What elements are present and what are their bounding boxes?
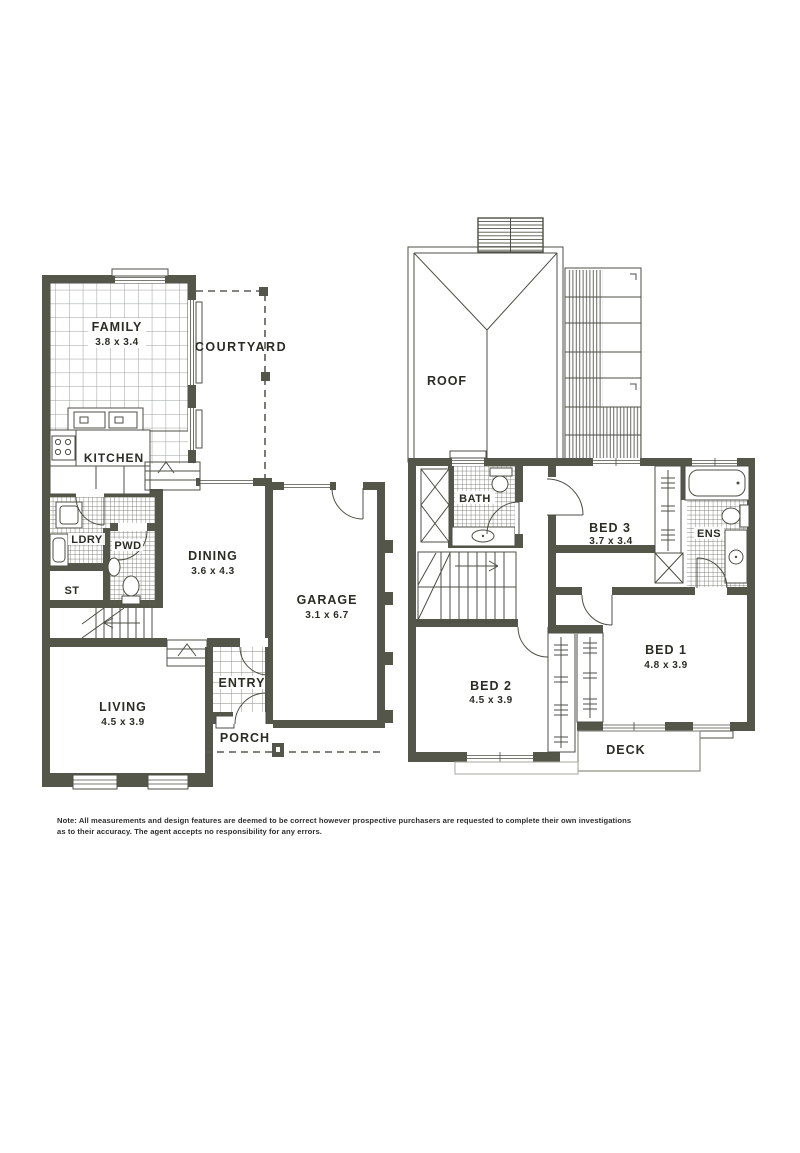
chimney [478,218,543,252]
garage-window [284,482,330,490]
step-arrow-icon [178,644,196,656]
disclaimer-note: Note: All measurements and design featur… [57,816,642,837]
room-label-bath: BATH [459,493,491,505]
room-label-courtyard: COURTYARD [195,340,287,354]
garage-door [332,482,363,519]
pwd-basin-icon [108,558,120,576]
bed2-door [518,627,548,657]
family-top-window [112,269,168,283]
ground-stairs [50,608,163,638]
dining-window [200,478,253,486]
upper-stairs [418,552,516,622]
stove-icon [52,436,75,460]
bed1-door [582,595,612,625]
pergola [565,268,641,460]
entry-step [216,716,234,728]
room-dims-bed1: 4.8 x 3.9 [644,660,687,671]
ens-toilet-icon [722,508,740,524]
family-side-windows [188,300,202,450]
room-label-st: ST [64,585,79,597]
room-label-dining: DINING [188,549,238,563]
room-label-bed2: BED 2 [470,679,512,693]
kitchen-sink [74,412,105,428]
courtyard-post [261,372,270,381]
room-dims-bed2: 4.5 x 3.9 [469,695,512,706]
kitchen-steps [145,462,200,490]
upper-floor-plan: ROOF BATH BED 3 3.7 x 3.4 ENS BED 1 4.8 … [408,218,755,774]
room-dims-family: 3.8 x 3.4 [95,337,138,348]
pwd-toilet-icon [123,576,139,596]
room-label-roof: ROOF [427,374,467,388]
courtyard-post [259,287,268,296]
room-label-living: LIVING [99,700,147,714]
linen-cupboard [421,469,449,542]
room-label-porch: PORCH [220,731,270,745]
bed3-window [593,458,640,466]
bed3-robe [655,466,683,583]
room-label-family: FAMILY [92,320,143,334]
roof-hip-lines [414,253,557,462]
room-dims-dining: 3.6 x 4.3 [191,566,234,577]
room-label-pwd: PWD [114,540,141,552]
room-label-bed3: BED 3 [589,521,631,535]
room-label-deck: DECK [606,743,645,757]
bed3-door [547,477,583,515]
porch-area [205,743,385,757]
room-dims-living: 4.5 x 3.9 [101,717,144,728]
room-label-entry: ENTRY [219,676,266,690]
bath-toilet-icon [492,476,508,492]
room-label-garage: GARAGE [297,593,358,607]
room-label-bed1: BED 1 [645,643,687,657]
floor-plan-canvas: FAMILY 3.8 x 3.4 COURTYARD KITCHEN LDRY … [0,0,800,1153]
roof-area [408,218,641,462]
courtyard-boundary [196,287,270,478]
room-label-ens: ENS [697,528,721,540]
floor-plan-page: FAMILY 3.8 x 3.4 COURTYARD KITCHEN LDRY … [0,0,800,1153]
dining-steps [167,640,207,666]
bath-window [450,451,486,466]
ens-window [692,458,737,466]
ground-floor-plan: FAMILY 3.8 x 3.4 COURTYARD KITCHEN LDRY … [42,269,393,789]
bathroom [452,466,523,546]
room-label-kitchen: KITCHEN [84,451,144,465]
room-dims-bed3: 3.7 x 3.4 [589,536,632,547]
powder-room [108,523,155,605]
room-label-ldry: LDRY [71,534,103,546]
room-dims-garage: 3.1 x 6.7 [305,610,348,621]
